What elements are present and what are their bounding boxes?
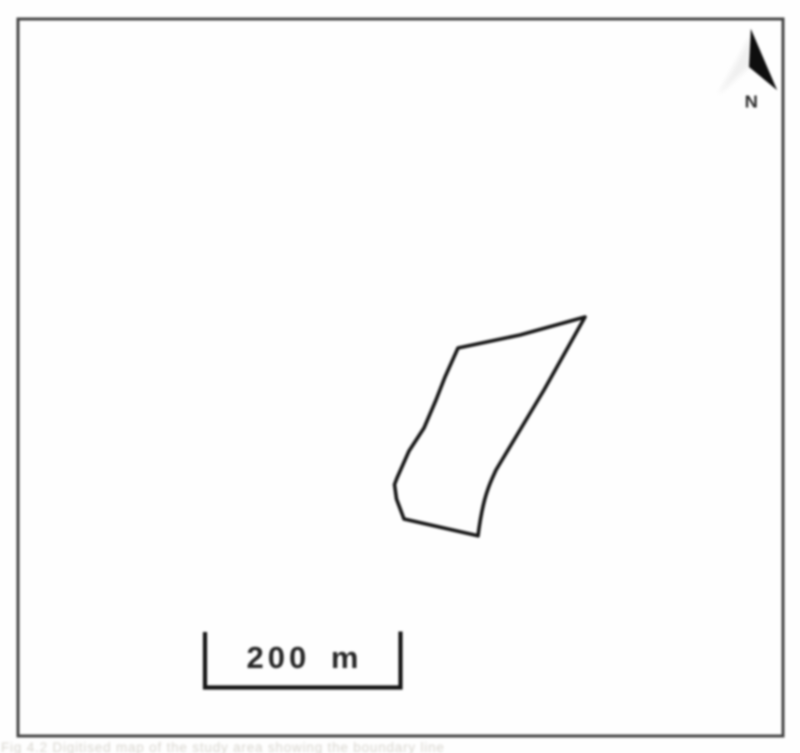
svg-text:Fig 4.2 Digitised map o: Fig 4.2 Digitised map of the study area … <box>1 740 445 753</box>
svg-text:200 m: 200 m <box>247 640 363 675</box>
svg-text:N: N <box>745 92 758 112</box>
